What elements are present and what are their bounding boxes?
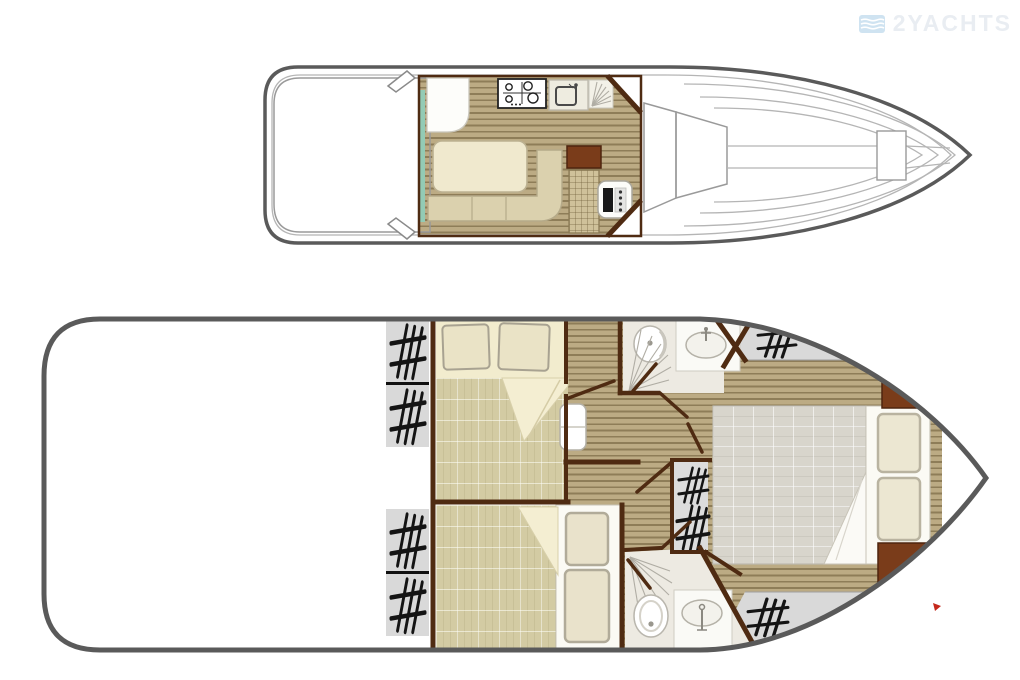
upper-deck-plan xyxy=(265,67,970,243)
lower-deck-plan xyxy=(44,300,1012,670)
helm-seat-border xyxy=(569,170,599,233)
salon xyxy=(419,76,641,236)
pillow-icon xyxy=(565,570,609,642)
sink-icon xyxy=(549,80,588,110)
helm-cabinet xyxy=(567,146,601,168)
washbasin-icon xyxy=(674,590,732,649)
watermark: 2YACHTS xyxy=(859,10,1012,37)
boat-floorplan-page: 2YACHTS xyxy=(0,0,1020,680)
pillow-icon xyxy=(878,414,920,472)
stove-icon xyxy=(498,79,546,108)
pillow-icon xyxy=(878,478,920,540)
dish-drainer-icon xyxy=(589,80,613,108)
watermark-text: 2YACHTS xyxy=(893,10,1012,37)
blanket-fold xyxy=(518,507,558,575)
cleat-icon xyxy=(388,71,415,92)
shower-room-aft xyxy=(625,548,752,649)
aft-sun-deck xyxy=(274,78,430,232)
pillow-icon xyxy=(566,513,608,565)
bow-deck xyxy=(644,84,955,226)
waves-logo-icon xyxy=(859,15,885,33)
cockpit-steps xyxy=(644,103,676,212)
galley-counter xyxy=(427,78,469,132)
blanket-fold xyxy=(502,378,568,441)
bow-hatch xyxy=(877,131,906,180)
floorplan-drawing xyxy=(0,0,1020,680)
pillow-icon xyxy=(498,323,550,371)
dinette-table xyxy=(433,141,527,192)
pillow-icon xyxy=(442,324,490,370)
washbasin-icon xyxy=(676,321,740,371)
toilet-icon xyxy=(634,595,668,637)
cleat-icon xyxy=(388,218,415,239)
